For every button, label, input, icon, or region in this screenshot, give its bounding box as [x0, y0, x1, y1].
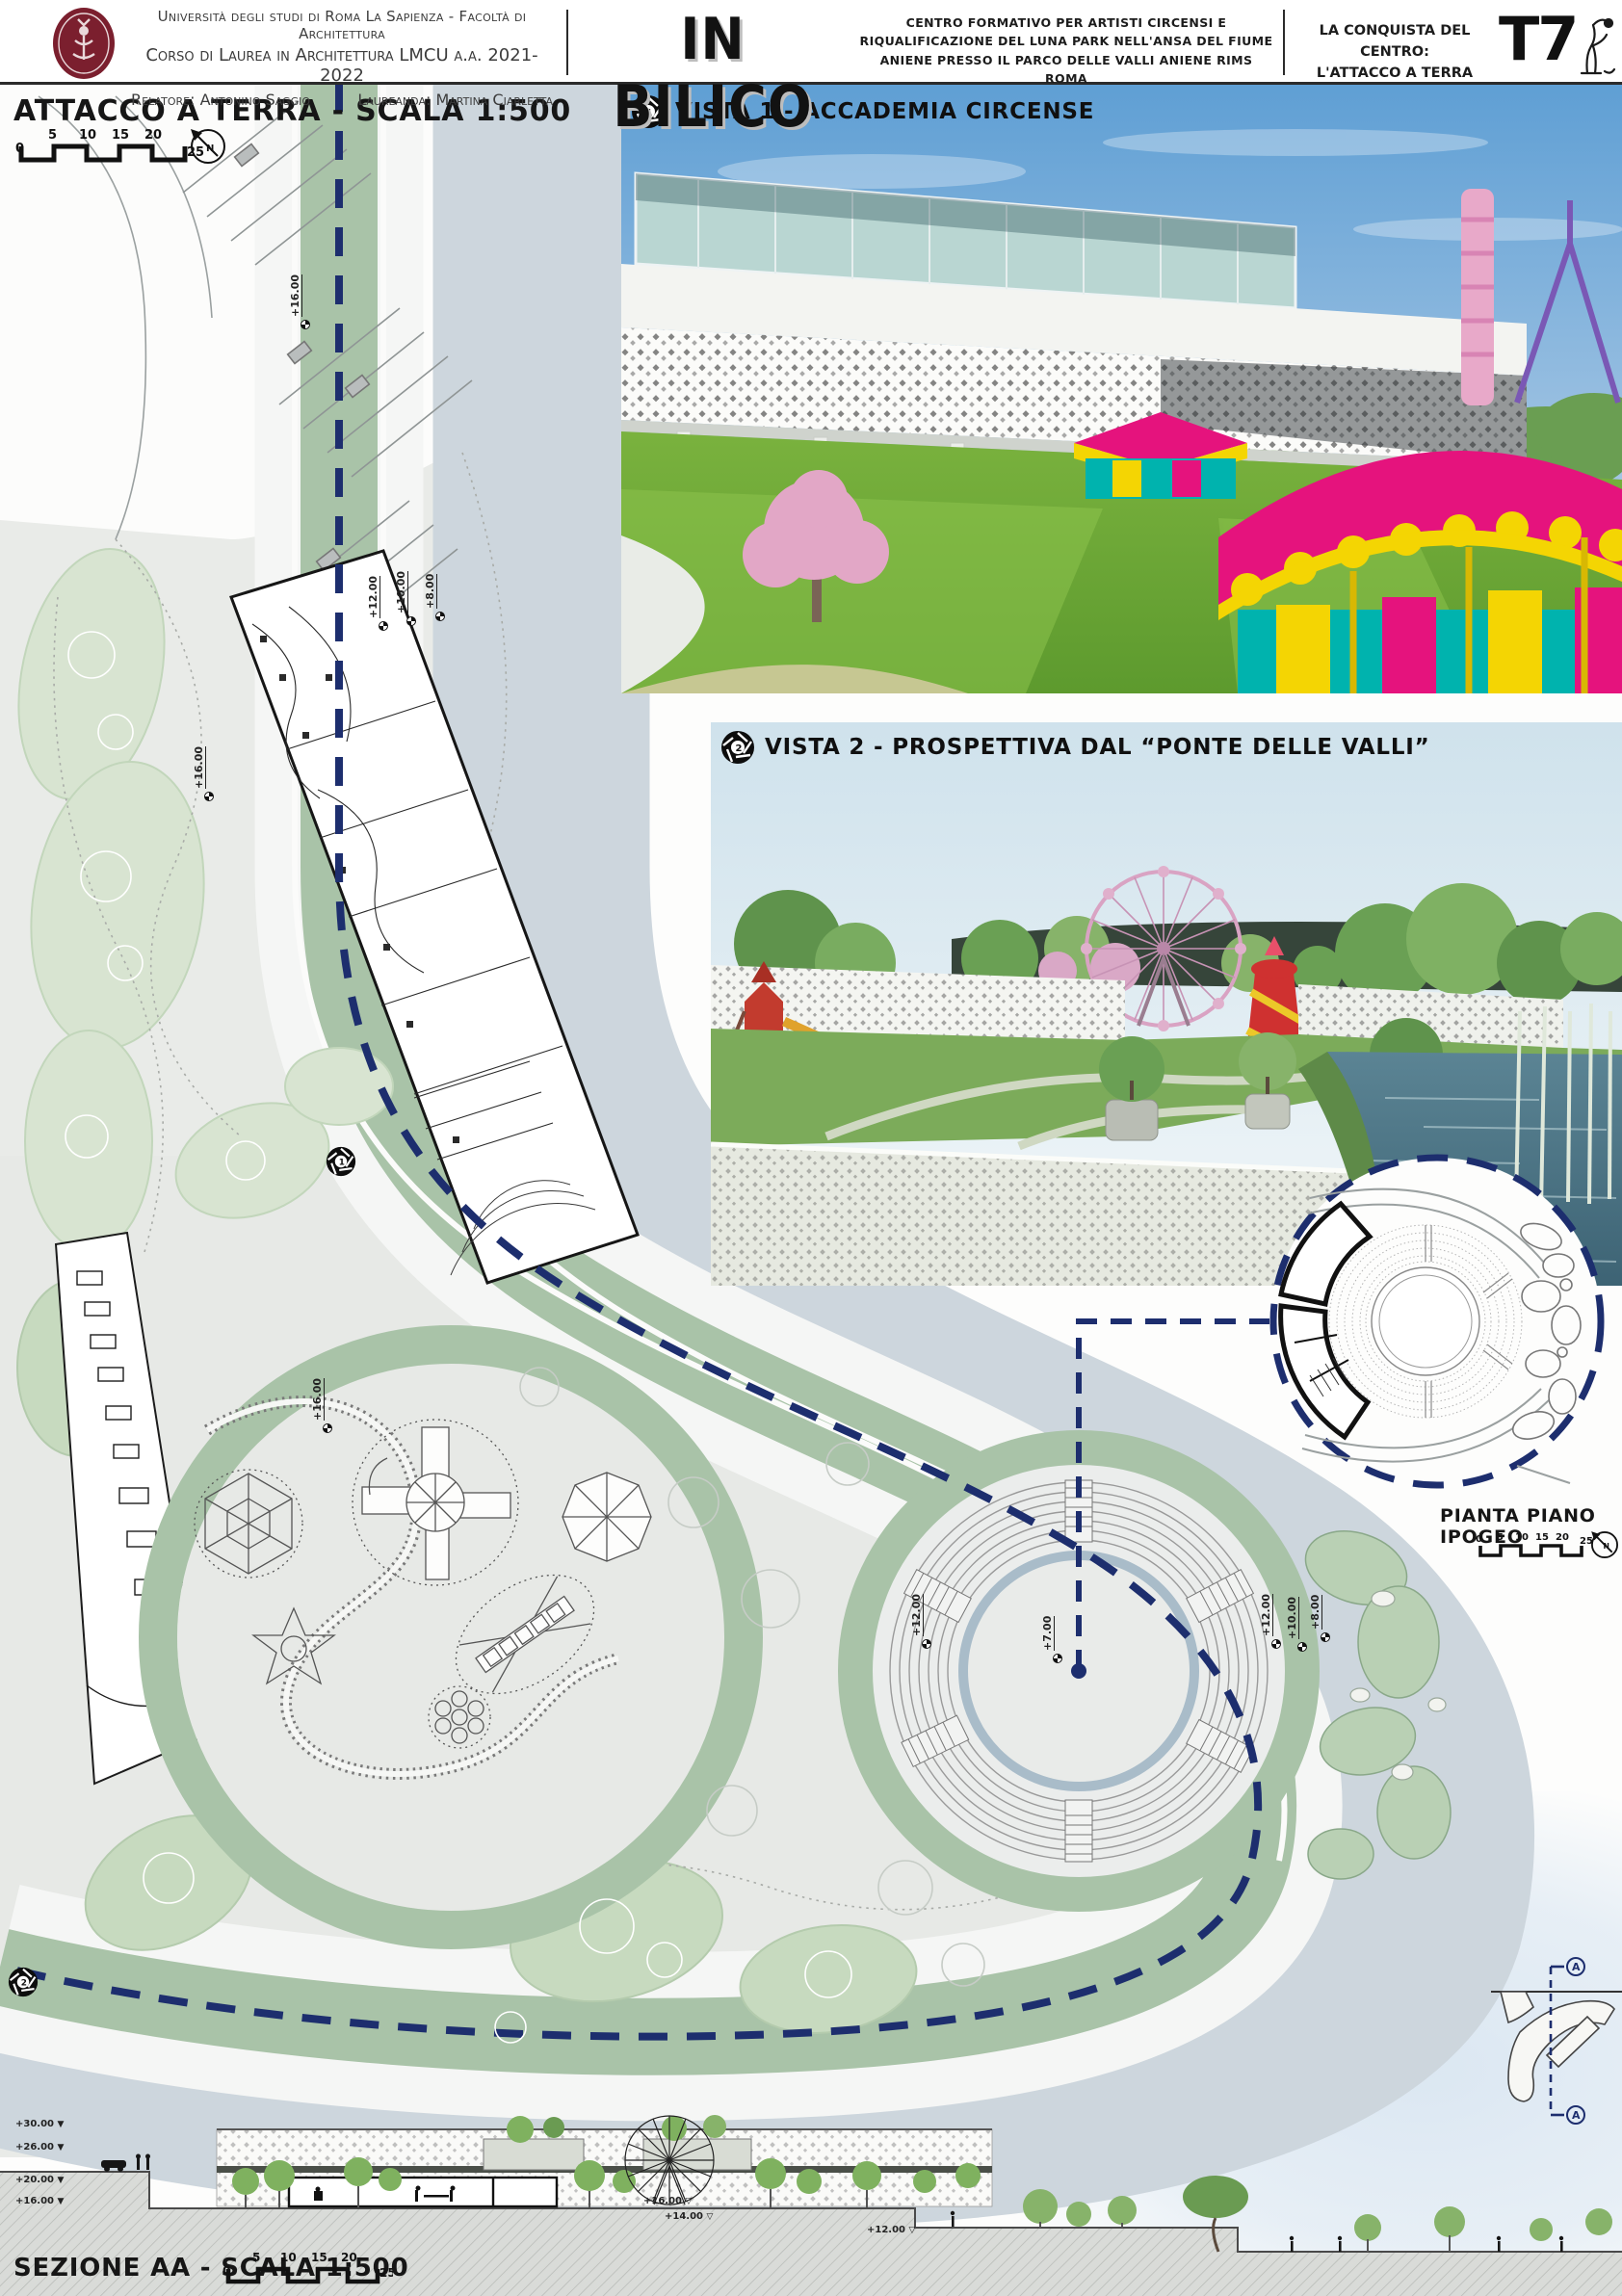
svg-text:15: 15 [311, 2251, 327, 2264]
svg-text:A: A [1572, 1961, 1581, 1973]
survey-point-icon [379, 621, 388, 631]
project-title: IN BILICO [578, 6, 848, 141]
svg-text:25: 25 [379, 2266, 393, 2280]
section-scale-bar: 0 5 10 15 20 25 [220, 2248, 393, 2290]
section-elevation-marker: +26.00 ▼ [15, 2142, 64, 2152]
section-elevation-marker: +14.00 ▽ [665, 2211, 713, 2222]
sheet-code: T7 [1499, 4, 1577, 74]
section-elevation-marker: +16.00 ▼ [15, 2196, 64, 2206]
section-elevation-marker: +16.00 ▽ [643, 2196, 692, 2206]
survey-point-icon [1321, 1632, 1330, 1642]
sapienza-logo [50, 6, 118, 81]
section-elevation-marker: +12.00 ▽ [867, 2225, 915, 2235]
svg-text:A: A [1572, 2109, 1581, 2122]
svg-text:20: 20 [1556, 1532, 1569, 1543]
svg-text:5: 5 [48, 128, 57, 143]
svg-text:15: 15 [1535, 1532, 1549, 1543]
survey-point-icon [922, 1639, 931, 1649]
header-divider-1 [566, 10, 568, 75]
survey-point-icon [406, 616, 416, 626]
svg-text:2: 2 [21, 1979, 27, 1989]
plan-camera1-icon: 1 [326, 1146, 356, 1177]
vista2-caption: 2 VISTA 2 - PROSPETTIVA DAL “PONTE DELLE… [720, 730, 1430, 765]
svg-text:20: 20 [144, 128, 162, 143]
laureanda-label: Laureanda: Martina Ciarletta [357, 91, 553, 109]
svg-text:0: 0 [1476, 1534, 1482, 1545]
vista2-label: VISTA 2 - PROSPETTIVA DAL “PONTE DELLE V… [765, 735, 1430, 760]
svg-text:2: 2 [736, 744, 743, 754]
series-line2: L'ATTACCO A TERRA [1298, 64, 1491, 85]
degree-course: Corso di Laurea in Architettura LMCU a.a… [125, 45, 559, 86]
svg-text:0: 0 [15, 142, 24, 156]
section-cut-key: A A [1491, 1955, 1622, 2128]
svg-text:5: 5 [1497, 1532, 1504, 1543]
series-line1: LA CONQUISTA DEL CENTRO: [1298, 21, 1491, 64]
svg-text:1: 1 [339, 1159, 345, 1168]
svg-text:20: 20 [341, 2251, 357, 2264]
svg-text:N: N [206, 143, 214, 154]
relatore-label: Relatore: Antonino Saggio [131, 91, 310, 109]
svg-text:N: N [1603, 1542, 1609, 1551]
survey-point-icon [1053, 1654, 1062, 1663]
section-elevation-marker: +30.00 ▼ [15, 2119, 64, 2129]
survey-point-icon [1271, 1639, 1281, 1649]
project-subtitle: CENTRO FORMATIVO PER ARTISTI CIRCENSI E … [859, 13, 1273, 89]
ipogeo-north-arrow-icon: N [1585, 1526, 1622, 1564]
svg-text:10: 10 [1515, 1532, 1529, 1543]
svg-text:10: 10 [280, 2251, 297, 2264]
advisor-student-line: Relatore: Antonino Saggio Laureanda: Mar… [125, 91, 559, 109]
svg-text:15: 15 [112, 128, 129, 143]
survey-point-icon [323, 1423, 332, 1433]
ipogeo-scale-bar: 0 5 10 15 20 25 [1474, 1529, 1595, 1562]
vista1-render [621, 85, 1622, 693]
survey-point-icon [204, 792, 214, 801]
svg-text:10: 10 [79, 128, 96, 143]
survey-point-icon [301, 320, 310, 329]
plan-scale-bar: 0 5 10 15 20 25 [12, 123, 204, 170]
ipogeo-detail-plan [1264, 1148, 1610, 1495]
section-elevation-marker: +20.00 ▼ [15, 2175, 64, 2185]
svg-text:5: 5 [252, 2251, 260, 2264]
presentation-board: Università degli studi di Roma La Sapien… [0, 0, 1622, 2296]
university-info: Università degli studi di Roma La Sapien… [125, 8, 559, 109]
series-title: LA CONQUISTA DEL CENTRO: L'ATTACCO A TER… [1298, 21, 1491, 84]
plan-north-arrow-icon: N [183, 121, 233, 171]
plan-camera2-icon: 2 [8, 1967, 39, 1997]
camera-aperture-icon: 2 [720, 730, 755, 765]
header-divider-2 [1283, 10, 1285, 75]
survey-point-icon [1297, 1642, 1307, 1652]
university-name: Università degli studi di Roma La Sapien… [125, 8, 559, 42]
title-block: Università degli studi di Roma La Sapien… [0, 0, 1622, 85]
survey-point-icon [435, 612, 445, 621]
svg-text:0: 0 [222, 2264, 230, 2278]
acrobat-sketch-icon [1568, 13, 1618, 77]
